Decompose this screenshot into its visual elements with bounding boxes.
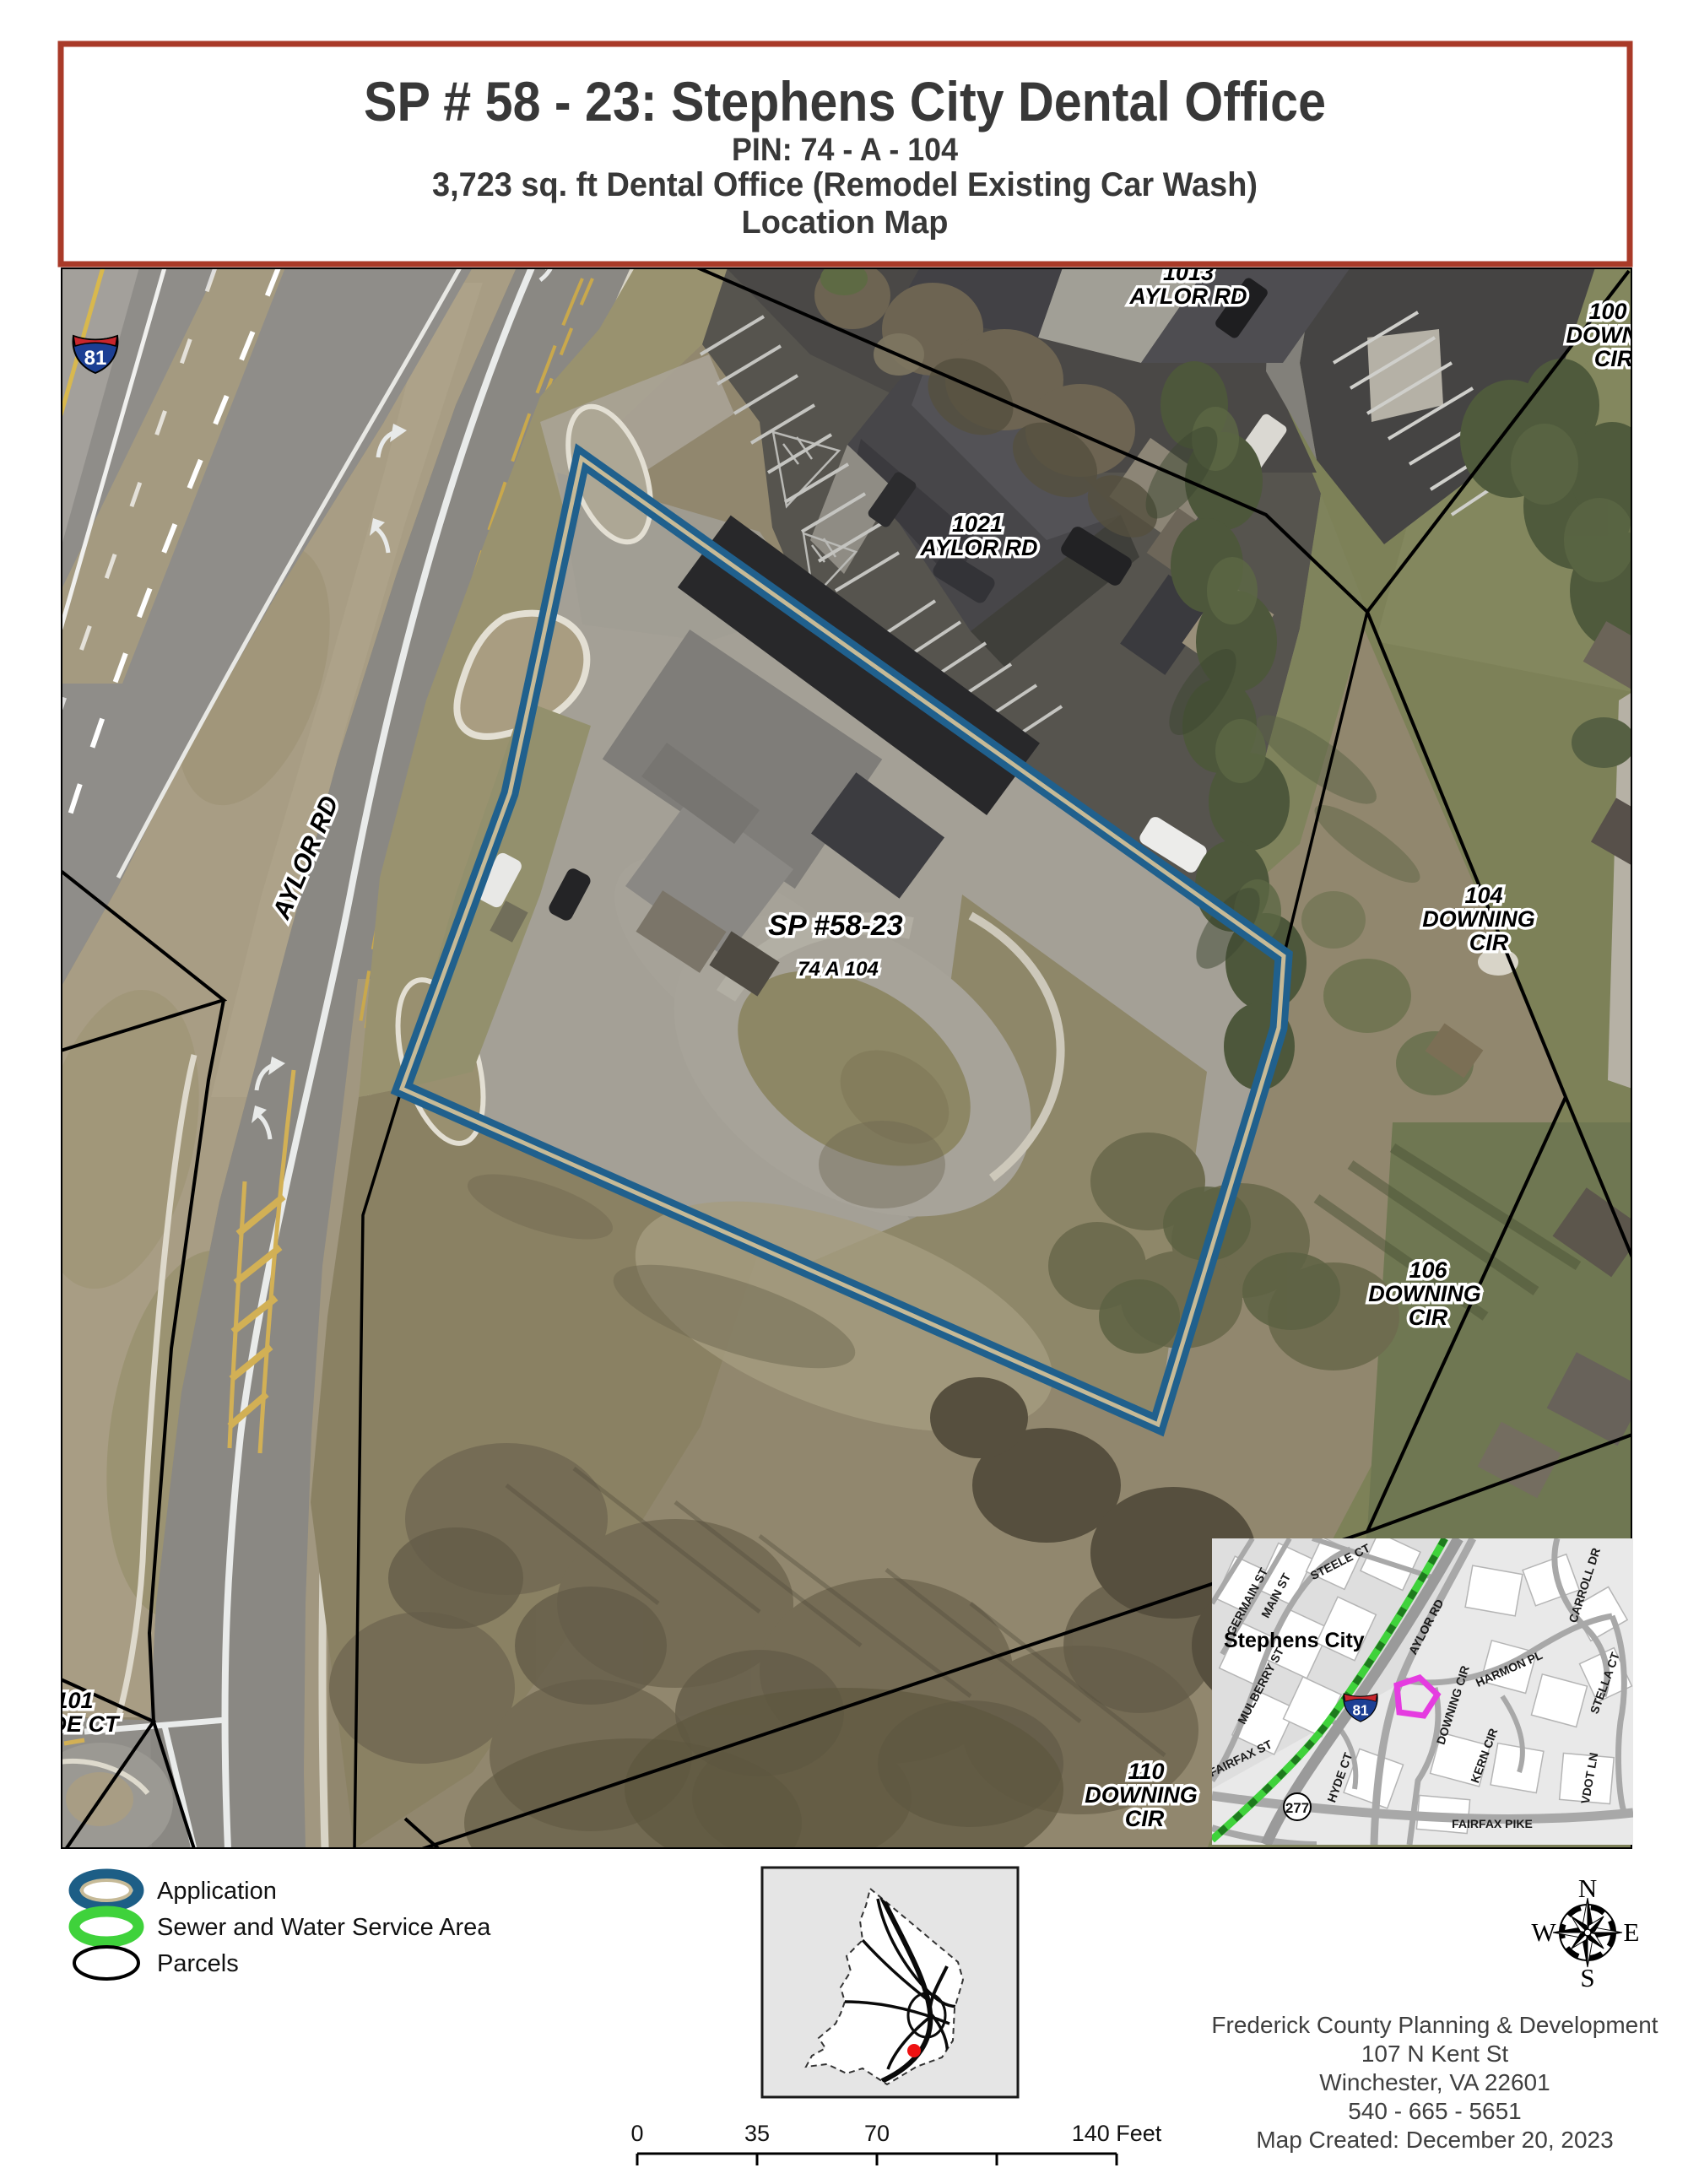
svg-text:74 A 104: 74 A 104 xyxy=(798,958,879,981)
svg-text:Application: Application xyxy=(157,1878,277,1905)
svg-text:35: 35 xyxy=(744,2121,770,2146)
svg-text:W: W xyxy=(1531,1917,1556,1947)
svg-text:N: N xyxy=(1578,1873,1597,1903)
svg-text:81: 81 xyxy=(1352,1702,1369,1719)
svg-text:DOWNING: DOWNING xyxy=(1422,906,1534,932)
svg-text:CIR: CIR xyxy=(1409,1305,1448,1330)
svg-text:104: 104 xyxy=(1464,883,1502,908)
svg-text:110: 110 xyxy=(1128,1759,1164,1784)
svg-text:S: S xyxy=(1580,1963,1594,1992)
svg-text:3,723 sq. ft Dental Office (Re: 3,723 sq. ft Dental Office (Remodel Exis… xyxy=(432,166,1258,203)
svg-text:DOWNING: DOWNING xyxy=(1085,1782,1197,1808)
svg-text:Map Created: December 20, 2023: Map Created: December 20, 2023 xyxy=(1256,2127,1613,2153)
svg-text:DOWNING: DOWNING xyxy=(1368,1281,1480,1306)
svg-text:106: 106 xyxy=(1409,1257,1447,1283)
svg-text:107 N Kent St: 107 N Kent St xyxy=(1361,2041,1509,2067)
svg-text:FAIRFAX PIKE: FAIRFAX PIKE xyxy=(1452,1817,1533,1830)
svg-text:CIR: CIR xyxy=(1125,1806,1165,1831)
svg-text:100: 100 xyxy=(1588,299,1626,324)
svg-text:PIN: 74 - A - 104: PIN: 74 - A - 104 xyxy=(732,132,958,168)
svg-text:Parcels: Parcels xyxy=(157,1950,239,1977)
svg-text:SP #58-23: SP #58-23 xyxy=(768,910,902,942)
svg-text:CIR: CIR xyxy=(1469,930,1509,955)
svg-text:Winchester, VA 22601: Winchester, VA 22601 xyxy=(1319,2069,1550,2095)
svg-text:277: 277 xyxy=(1285,1800,1309,1816)
svg-text:540 - 665 - 5651: 540 - 665 - 5651 xyxy=(1348,2098,1522,2124)
svg-text:SP # 58 - 23: Stephens City De: SP # 58 - 23: Stephens City Dental Offic… xyxy=(364,70,1326,132)
svg-text:140 Feet: 140 Feet xyxy=(1072,2121,1162,2146)
svg-text:Stephens City: Stephens City xyxy=(1224,1629,1365,1652)
svg-text:Sewer and Water Service Area: Sewer and Water Service Area xyxy=(157,1914,491,1941)
svg-text:AYLOR RD: AYLOR RD xyxy=(920,535,1038,560)
svg-text:70: 70 xyxy=(864,2121,890,2146)
svg-text:Location Map: Location Map xyxy=(742,205,949,241)
svg-text:AYLOR RD: AYLOR RD xyxy=(1129,284,1247,309)
svg-text:Frederick County Planning & De: Frederick County Planning & Development xyxy=(1211,2012,1658,2038)
svg-text:CIR: CIR xyxy=(1594,346,1634,371)
svg-text:E: E xyxy=(1624,1917,1640,1947)
svg-text:81: 81 xyxy=(84,347,107,370)
svg-text:1021: 1021 xyxy=(952,511,1003,537)
svg-text:0: 0 xyxy=(630,2121,643,2146)
